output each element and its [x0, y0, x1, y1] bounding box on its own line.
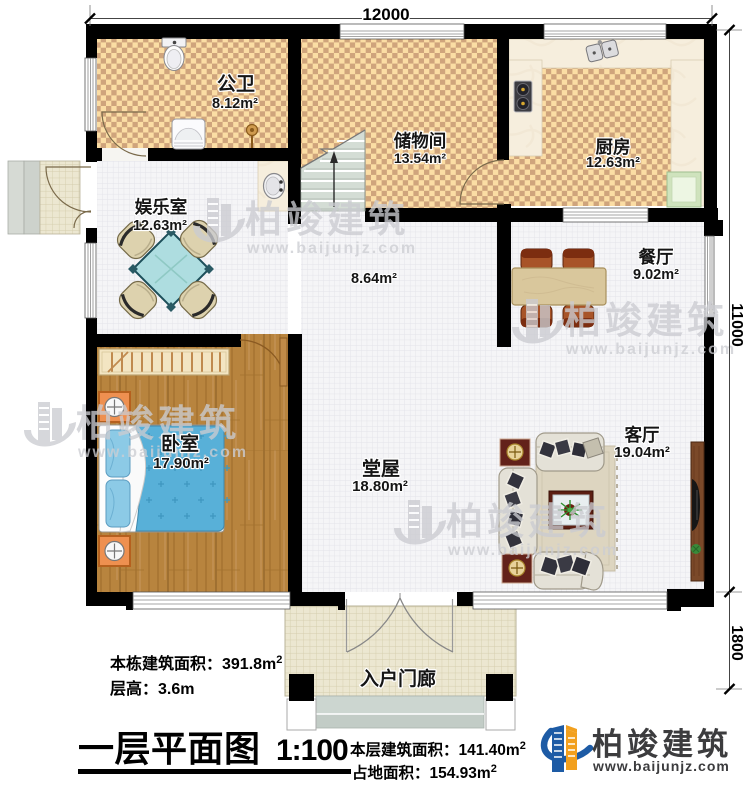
svg-text:12.63m²: 12.63m² — [133, 218, 187, 234]
svg-text:www.baijunjz.com: www.baijunjz.com — [592, 758, 730, 774]
svg-text:12.63m²: 12.63m² — [586, 155, 640, 171]
svg-text:公卫: 公卫 — [217, 73, 255, 95]
svg-text:层高：3.6m: 层高：3.6m — [110, 679, 194, 698]
svg-text:11000: 11000 — [728, 303, 745, 347]
svg-text:17.90m²: 17.90m² — [153, 455, 209, 472]
svg-text:本层建筑面积：141.40m2: 本层建筑面积：141.40m2 — [350, 740, 526, 759]
svg-text:12000: 12000 — [362, 5, 409, 24]
svg-text:娱乐室: 娱乐室 — [135, 197, 188, 217]
svg-text:入户门廊: 入户门廊 — [360, 667, 436, 690]
svg-text:9.02m²: 9.02m² — [633, 267, 679, 283]
svg-text:餐厅: 餐厅 — [639, 247, 674, 267]
svg-text:客厅: 客厅 — [624, 425, 660, 445]
svg-text:卧室: 卧室 — [161, 432, 199, 455]
svg-text:1:100: 1:100 — [276, 734, 348, 767]
svg-text:本栋建筑面积：391.8m2: 本栋建筑面积：391.8m2 — [110, 654, 282, 673]
svg-text:1800: 1800 — [728, 625, 745, 661]
svg-text:储物间: 储物间 — [394, 131, 447, 151]
svg-text:8.64m²: 8.64m² — [351, 271, 397, 287]
svg-text:堂屋: 堂屋 — [362, 458, 400, 480]
svg-text:8.12m²: 8.12m² — [212, 96, 258, 112]
svg-text:厨房: 厨房 — [596, 137, 631, 157]
svg-text:13.54m²: 13.54m² — [394, 150, 446, 166]
svg-text:柏竣建筑: 柏竣建筑 — [592, 727, 732, 762]
svg-text:19.04m²: 19.04m² — [614, 444, 670, 461]
svg-text:占地面积：154.93m2: 占地面积：154.93m2 — [352, 763, 497, 782]
svg-text:一层平面图: 一层平面图 — [78, 728, 261, 769]
svg-text:18.80m²: 18.80m² — [352, 478, 408, 495]
